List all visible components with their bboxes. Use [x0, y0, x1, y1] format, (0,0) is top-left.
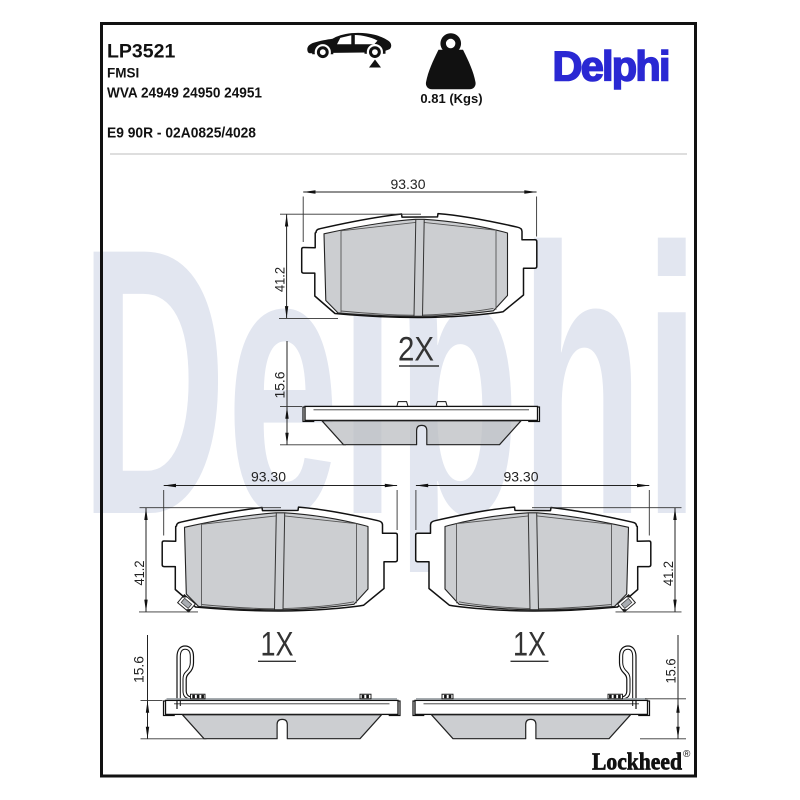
svg-text:FMSI: FMSI [107, 66, 139, 81]
svg-text:E9 90R - 02A0825/4028: E9 90R - 02A0825/4028 [107, 126, 256, 142]
svg-text:1X: 1X [513, 626, 546, 664]
svg-text:15.6: 15.6 [272, 371, 288, 398]
svg-text:Lockheed: Lockheed [592, 750, 683, 776]
svg-text:Delphi: Delphi [553, 43, 671, 90]
svg-text:2X: 2X [398, 331, 434, 369]
svg-text:93.30: 93.30 [391, 176, 426, 192]
svg-text:®: ® [683, 749, 691, 760]
svg-text:1X: 1X [261, 626, 294, 664]
svg-text:41.2: 41.2 [272, 267, 288, 292]
svg-text:15.6: 15.6 [663, 658, 679, 683]
svg-text:93.30: 93.30 [251, 469, 286, 485]
svg-text:41.2: 41.2 [660, 561, 676, 586]
svg-text:0.81 (Kgs): 0.81 (Kgs) [420, 91, 482, 106]
svg-text:WVA 24949 24950 24951: WVA 24949 24950 24951 [107, 86, 262, 102]
svg-text:LP3521: LP3521 [107, 41, 175, 63]
svg-text:93.30: 93.30 [504, 469, 539, 485]
svg-text:15.6: 15.6 [131, 656, 147, 683]
svg-text:41.2: 41.2 [131, 560, 147, 585]
